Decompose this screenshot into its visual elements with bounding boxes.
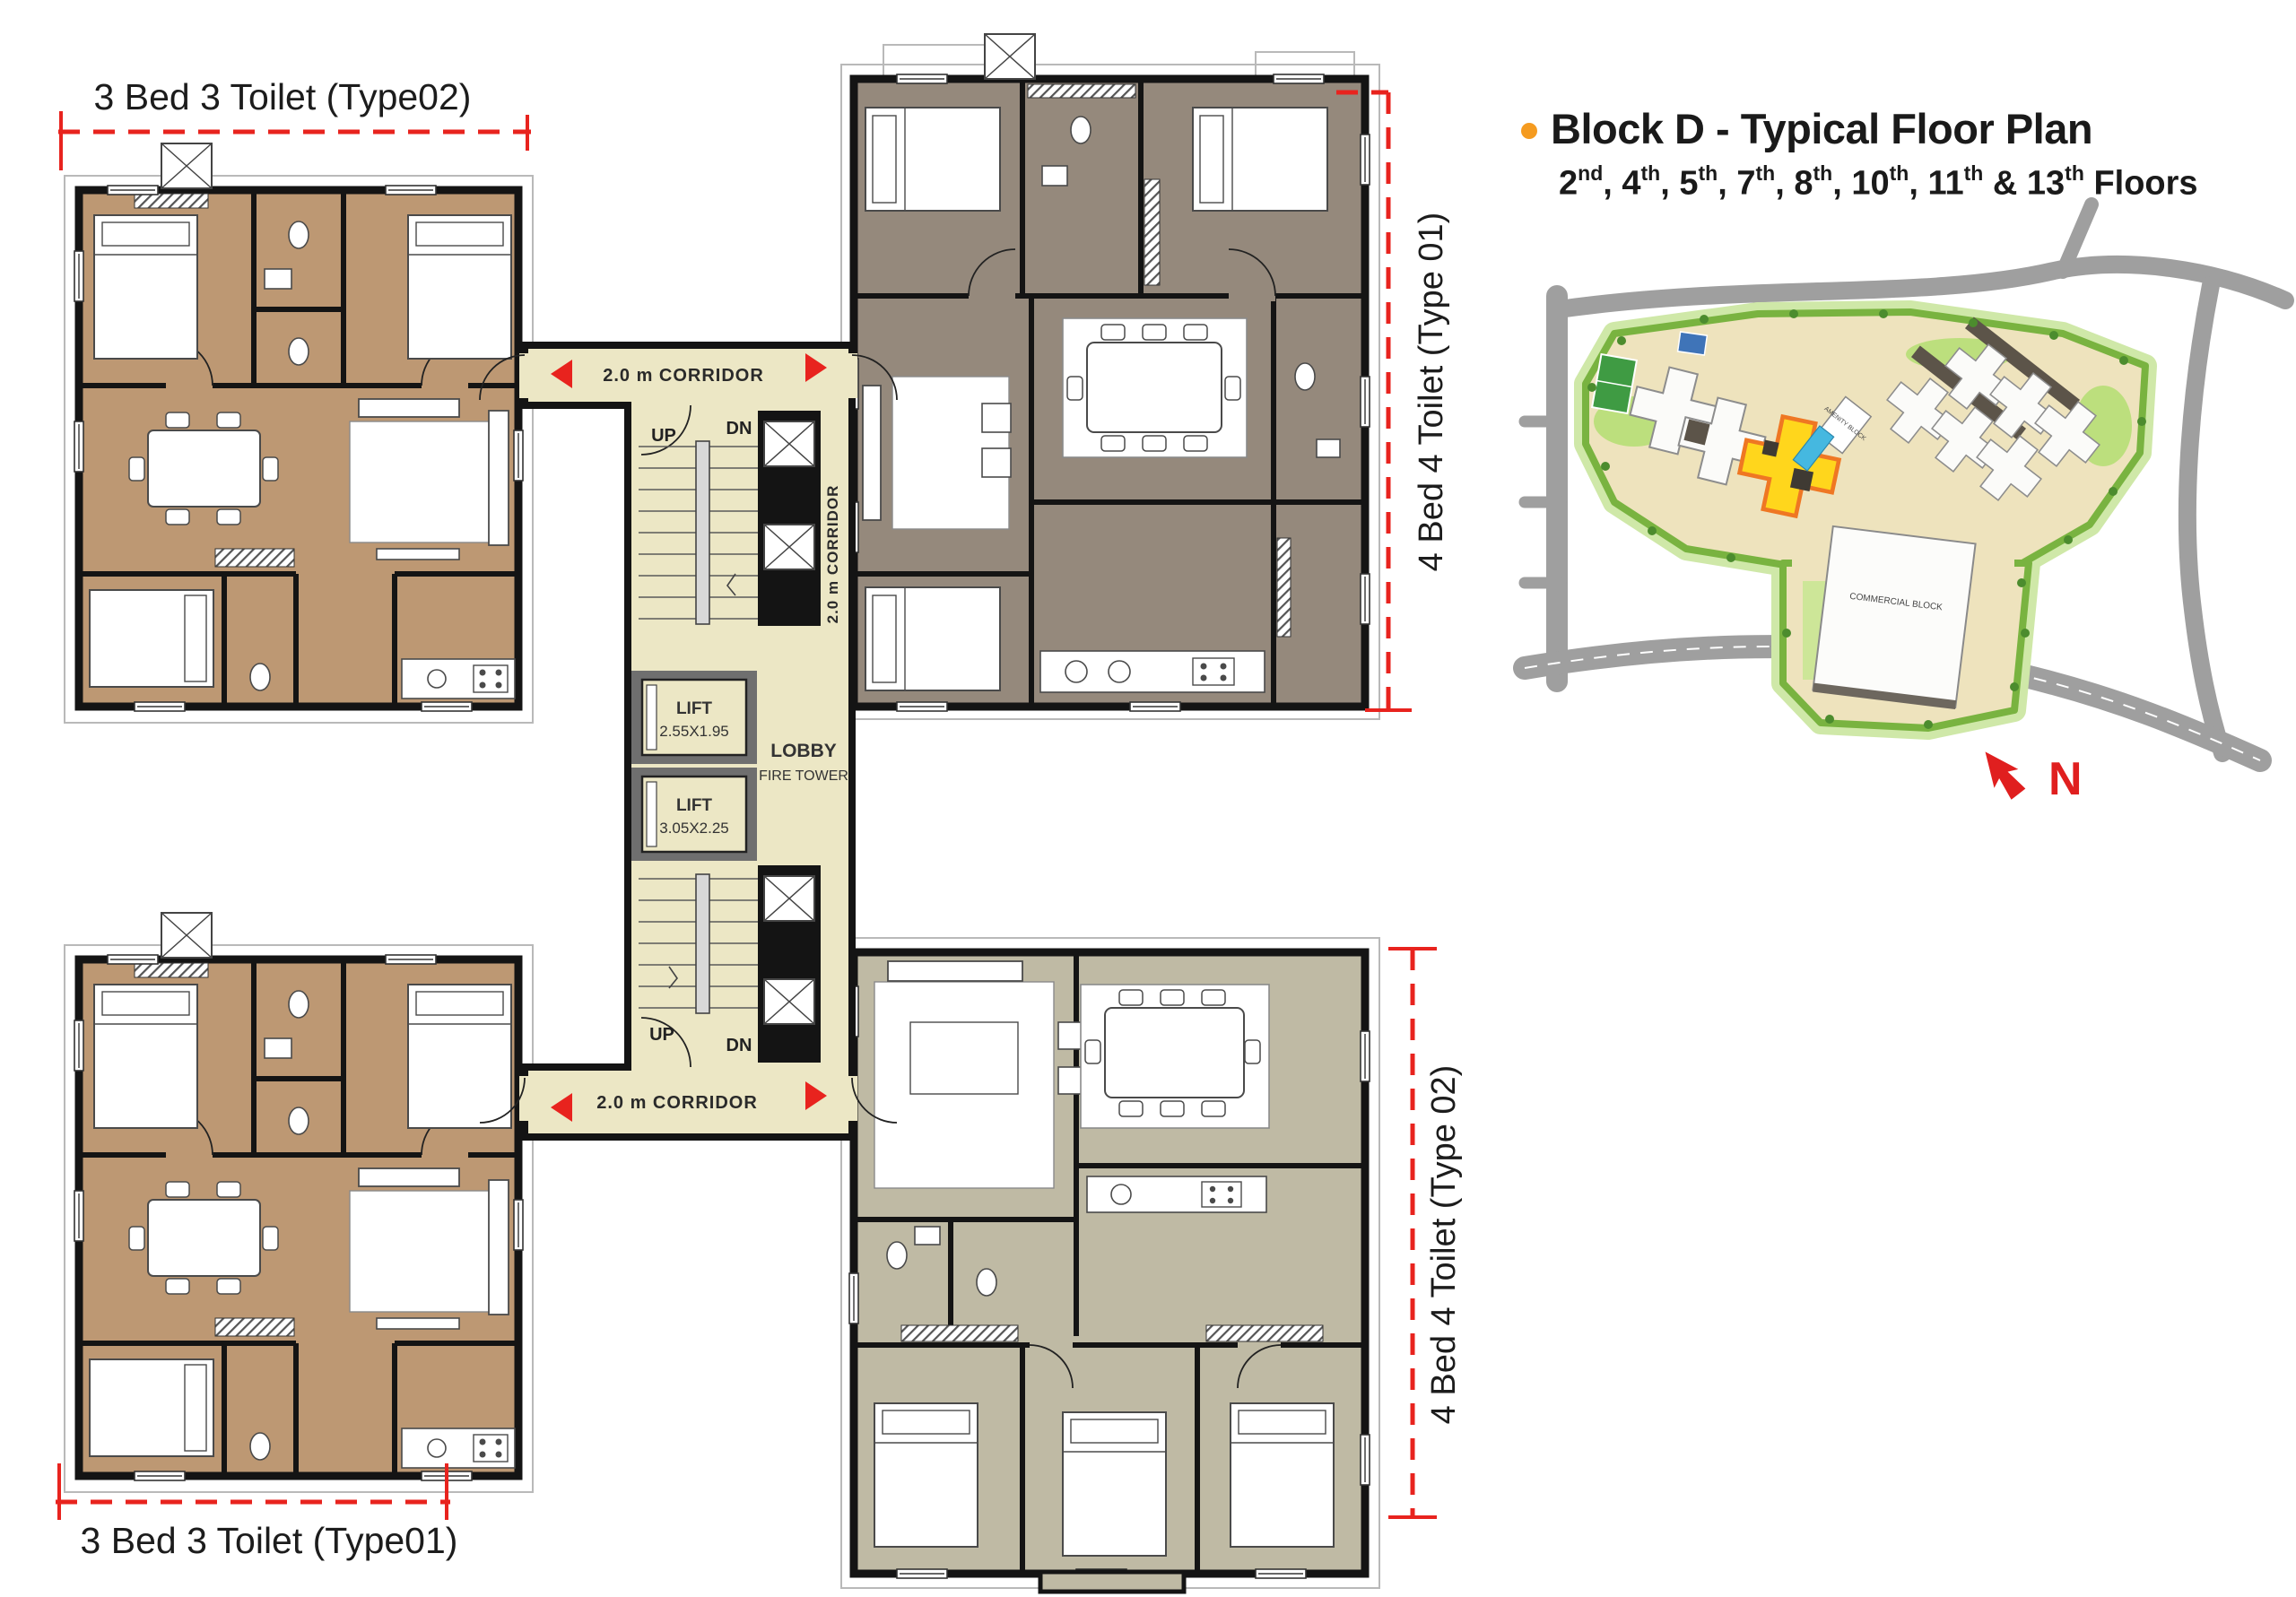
corridor-vertical-label: 2.0 m CORRIDOR	[824, 485, 841, 624]
floors-subtitle: 2nd, 4th, 5th, 7th, 8th, 10th, 11th & 13…	[1559, 163, 2296, 204]
stair-top-up-label: UP	[651, 426, 676, 446]
unit-3bed-type02-plan	[65, 143, 533, 723]
duct-shaft	[161, 143, 212, 188]
basketball-court	[1678, 332, 1708, 355]
lobby-label: LOBBY	[770, 741, 837, 761]
north-arrow-icon	[1973, 742, 2031, 803]
lift-2-size: 3.05X2.25	[659, 820, 729, 837]
north-arrow: N	[1973, 742, 2082, 805]
central-core: 2.0 m CORRIDOR 2.0 m CORRIDOR 2.0 m CORR…	[480, 345, 897, 1137]
site-parcel: AMENITY BLOCK COMMERCIAL BLOCK	[1586, 309, 2146, 729]
unit-bottom-right-label: 4 Bed 4 Toilet (Type 02)	[1425, 1065, 1463, 1425]
commercial-block: COMMERCIAL BLOCK	[1813, 526, 1975, 709]
info-panel: Block D - Typical Floor Plan 2nd, 4th, 5…	[1521, 104, 2296, 204]
unit-top-right-label: 4 Bed 4 Toilet (Type 01)	[1413, 213, 1450, 572]
site-map: AMENITY BLOCK COMMERCIAL BLOCK	[1525, 204, 2285, 805]
floor-plan-drawing: 2.0 m CORRIDOR 2.0 m CORRIDOR 2.0 m CORR…	[0, 0, 2296, 1597]
stair-top	[639, 441, 767, 624]
vent-shaft-top	[758, 411, 821, 626]
unit-4bed-type02-plan	[841, 938, 1379, 1592]
unit-3bed-type01-plan	[65, 913, 533, 1492]
unit-top-left-label: 3 Bed 3 Toilet (Type02)	[94, 76, 472, 117]
corridor-top-label: 2.0 m CORRIDOR	[603, 366, 764, 386]
lift-1-size: 2.55X1.95	[659, 723, 729, 740]
corridor-bottom-label: 2.0 m CORRIDOR	[596, 1093, 758, 1113]
fire-tower-label: FIRE TOWER	[759, 768, 848, 784]
stair-bottom-up-label: UP	[649, 1025, 674, 1045]
unit-4bed-type01-plan	[841, 34, 1379, 719]
stair-bottom-dn-label: DN	[726, 1036, 752, 1055]
title-row: Block D - Typical Floor Plan	[1521, 104, 2296, 154]
lift-2-label: LIFT	[676, 796, 712, 815]
duct-shaft	[985, 34, 1035, 79]
brochure-page: { "info_panel": { "title": "Block D - Ty…	[0, 0, 2296, 1597]
bullet-icon	[1521, 123, 1537, 139]
unit-bottom-left-label: 3 Bed 3 Toilet (Type01)	[81, 1520, 458, 1561]
stair-top-dn-label: DN	[726, 419, 752, 438]
north-label: N	[2048, 753, 2083, 805]
lift-1-label: LIFT	[676, 699, 712, 718]
balcony-protrusion	[1040, 1572, 1184, 1592]
vent-shaft-bottom	[758, 865, 821, 1063]
page-title: Block D - Typical Floor Plan	[1551, 104, 2092, 154]
